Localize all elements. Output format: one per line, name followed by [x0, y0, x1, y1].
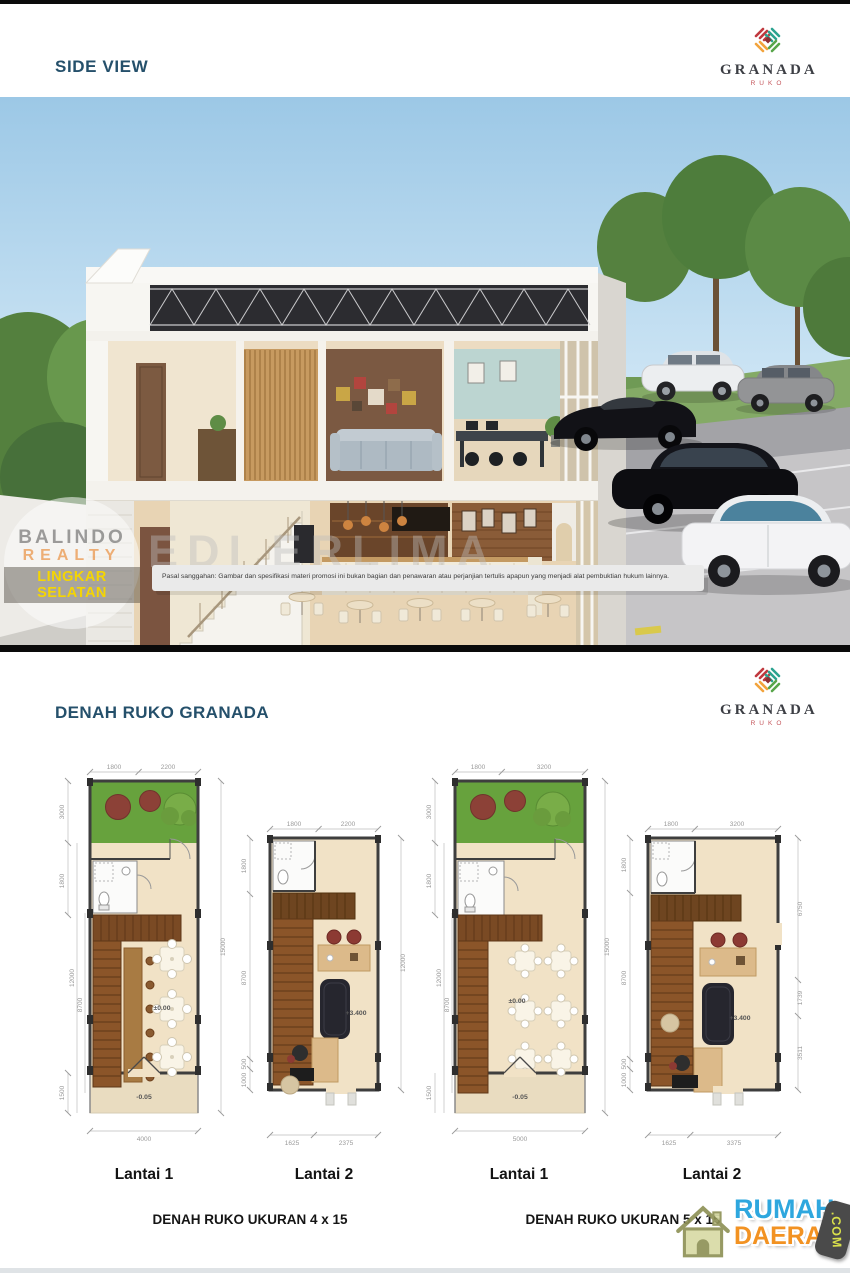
dim-label: 500: [241, 1058, 248, 1069]
dim-label: 3375: [727, 1140, 742, 1147]
dim-label: 500: [621, 1058, 628, 1069]
balcony-stub: [326, 1093, 334, 1105]
dim-label: 15000: [220, 938, 227, 956]
realty-stamp-watermark: BALINDO REALTY LINGKAR SELATAN: [4, 497, 140, 629]
dim-label: 4000: [137, 1136, 152, 1143]
balcony-stub: [713, 1093, 721, 1105]
dim-label: 1800: [59, 873, 66, 888]
page-title: SIDE VIEW: [55, 57, 148, 77]
roof-truss: [150, 285, 590, 331]
dim-label: 8700: [444, 997, 451, 1012]
granada-subtitle: RUKO: [720, 80, 816, 87]
office-wall: [452, 349, 560, 419]
dim-label: 1625: [662, 1140, 677, 1147]
granada-logo: GRANADA RUKO: [720, 24, 816, 87]
dim-label: 1800: [241, 858, 248, 873]
wood-slat-wall: [240, 349, 318, 481]
sofa: [702, 983, 734, 1045]
dim-label: 1000: [241, 1072, 248, 1087]
plan-label: Lantai 2: [618, 1166, 806, 1184]
stamp-line-1: BALINDO: [4, 527, 140, 549]
disclaimer-strip: Pasal sanggahan: Gambar dan spesifikasi …: [152, 565, 704, 591]
dim-label: 1739: [797, 990, 804, 1005]
dim-label: 12000: [400, 954, 407, 972]
stamp-line-2: REALTY: [4, 547, 140, 565]
entrance-gap: [128, 1069, 160, 1077]
dim-label: 3200: [537, 764, 552, 771]
dim-label: 1500: [426, 1085, 433, 1100]
dim-label: 1800: [287, 821, 302, 828]
house-icon: [672, 1200, 734, 1262]
dim-label: 1800: [664, 821, 679, 828]
brochure-page: SIDE VIEW GRANADA RUKO: [0, 0, 850, 1273]
top-black-bar: [0, 0, 850, 4]
upper-floor-interior: [108, 341, 598, 481]
entrance-gap: [504, 1069, 536, 1077]
dim-label: 3000: [59, 804, 66, 819]
bathroom: [651, 841, 695, 893]
dim-label: 3200: [730, 821, 745, 828]
plan-label: Lantai 1: [425, 1166, 613, 1184]
dim-label: 2200: [161, 764, 176, 771]
disclaimer-text: Pasal sanggahan: Gambar dan spesifikasi …: [152, 565, 704, 580]
dim-label: 2200: [341, 821, 356, 828]
granada-wordmark: GRANADA: [720, 702, 816, 719]
floor-plan-4x15-lantai-2: 1800 2200 1800 8700 500 1000 12000 1625 …: [238, 763, 410, 1173]
plan-label: Lantai 2: [238, 1166, 410, 1184]
dim-label: 6750: [797, 901, 804, 916]
plans-section-title: DENAH RUKO GRANADA: [55, 703, 269, 723]
dim-label: 1625: [285, 1140, 300, 1147]
level-label: ±0.00: [154, 1005, 171, 1012]
granada-logo-icon: [748, 664, 788, 696]
level-label: -0.05: [136, 1094, 152, 1101]
granada-wordmark: GRANADA: [720, 62, 816, 79]
bathroom: [273, 841, 315, 891]
dim-label: 15000: [604, 938, 611, 956]
dim-label: 2375: [339, 1140, 354, 1147]
balcony-stub: [735, 1093, 743, 1105]
level-label: ±0.00: [509, 998, 526, 1005]
console-cabinet: [198, 429, 238, 481]
balcony-stub: [348, 1093, 356, 1105]
plans-title-bold: RUKO GRANADA: [123, 703, 269, 722]
side-opening: [774, 923, 782, 945]
dim-label: 1800: [621, 857, 628, 872]
floor-plan-5x15-lantai-2: 1800 3200 1800 8700 500 1000 6750 1739 3…: [618, 763, 806, 1173]
dim-label: 3000: [426, 804, 433, 819]
dim-label: 8700: [621, 970, 628, 985]
plan-label: Lantai 1: [58, 1166, 230, 1184]
pouf: [281, 1076, 299, 1094]
size-caption-4x15: DENAH RUKO UKURAN 4 x 15: [95, 1212, 405, 1227]
level-label: +3.400: [730, 1015, 751, 1022]
dim-label: 5000: [513, 1136, 528, 1143]
level-label: +3.400: [346, 1010, 367, 1017]
granada-logo: GRANADA RUKO: [720, 664, 816, 727]
granada-subtitle: RUKO: [720, 720, 816, 727]
dotcom-badge-text: .COM: [828, 1211, 843, 1248]
dim-label: 1800: [426, 873, 433, 888]
level-label: -0.05: [512, 1094, 528, 1101]
sofa: [330, 429, 442, 471]
plans-title-prefix: DENAH: [55, 703, 117, 722]
dim-label: 8700: [241, 970, 248, 985]
dim-label: 12000: [69, 969, 76, 987]
dim-label: 1000: [621, 1072, 628, 1087]
dim-label: 1800: [471, 764, 486, 771]
rumahdaerah-logo: RUMAH DAERAH .COM: [672, 1196, 850, 1272]
dim-label: 1500: [59, 1085, 66, 1100]
dim-label: 1800: [107, 764, 122, 771]
dim-label: 8700: [77, 997, 84, 1012]
dim-label: 12000: [436, 969, 443, 987]
dim-label: 3511: [797, 1046, 804, 1060]
floor-plan-4x15-lantai-1: 1800 2200 3000 1800 12000 8700 1500 1500…: [58, 763, 230, 1173]
pouf: [661, 1014, 679, 1032]
granada-logo-icon: [748, 24, 788, 56]
stamp-line-3: LINGKAR SELATAN: [4, 567, 140, 603]
section-divider: [0, 645, 850, 652]
floor-plan-5x15-lantai-1: 1800 3200 3000 1800 12000 8700 1500 1500…: [425, 763, 613, 1173]
